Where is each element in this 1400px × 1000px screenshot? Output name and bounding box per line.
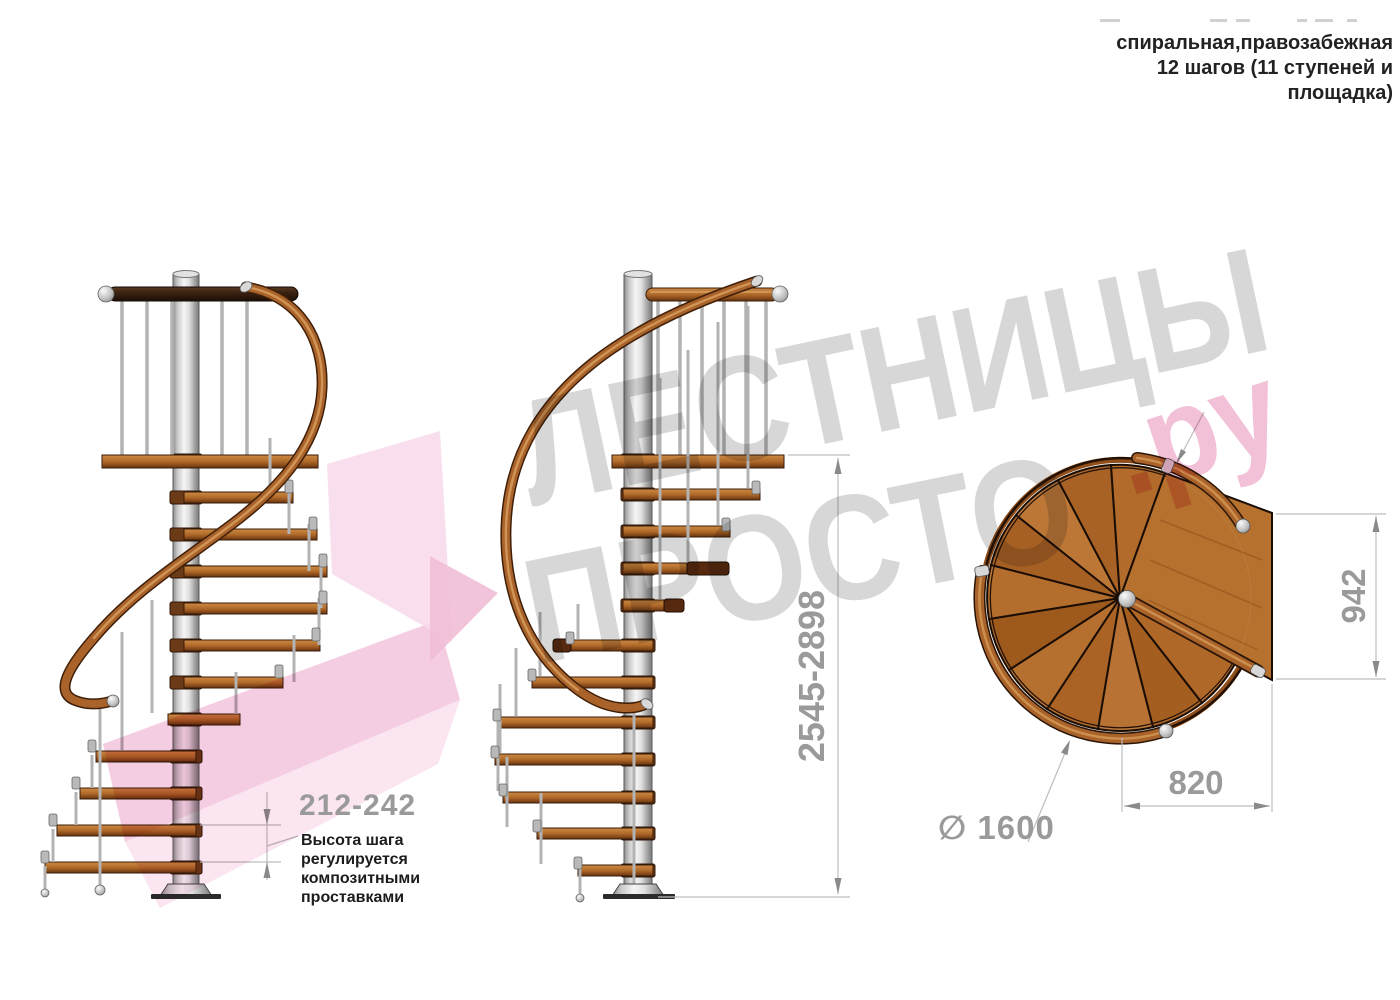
landing-depth-dimension: 942 [1335,536,1373,656]
note-line: Высота шага [301,831,420,850]
spec-text: спиральная,правозабежная 12 шагов (11 ст… [1116,31,1393,106]
step-height-note: Высота шага регулируется композитными пр… [301,831,420,907]
spec-line: 12 шагов (11 ступеней и [1116,56,1393,81]
note-line: проставками [301,888,420,907]
diameter-dimension: ∅ 1600 [938,808,1055,847]
step-height-dimension: 212-242 [299,789,416,823]
spec-line: спиральная,правозабежная [1116,31,1393,56]
spec-line: площадка) [1116,81,1393,106]
technical-drawing-page: ЛЕСТНИЦЫ ПРОСТО .ру 212-242 Высота шага … [0,0,1400,1000]
note-line: регулируется [301,850,420,869]
total-height-dimension: 2545-2898 [791,556,833,796]
landing-width-dimension: 820 [1136,764,1256,802]
note-line: композитными [301,869,420,888]
